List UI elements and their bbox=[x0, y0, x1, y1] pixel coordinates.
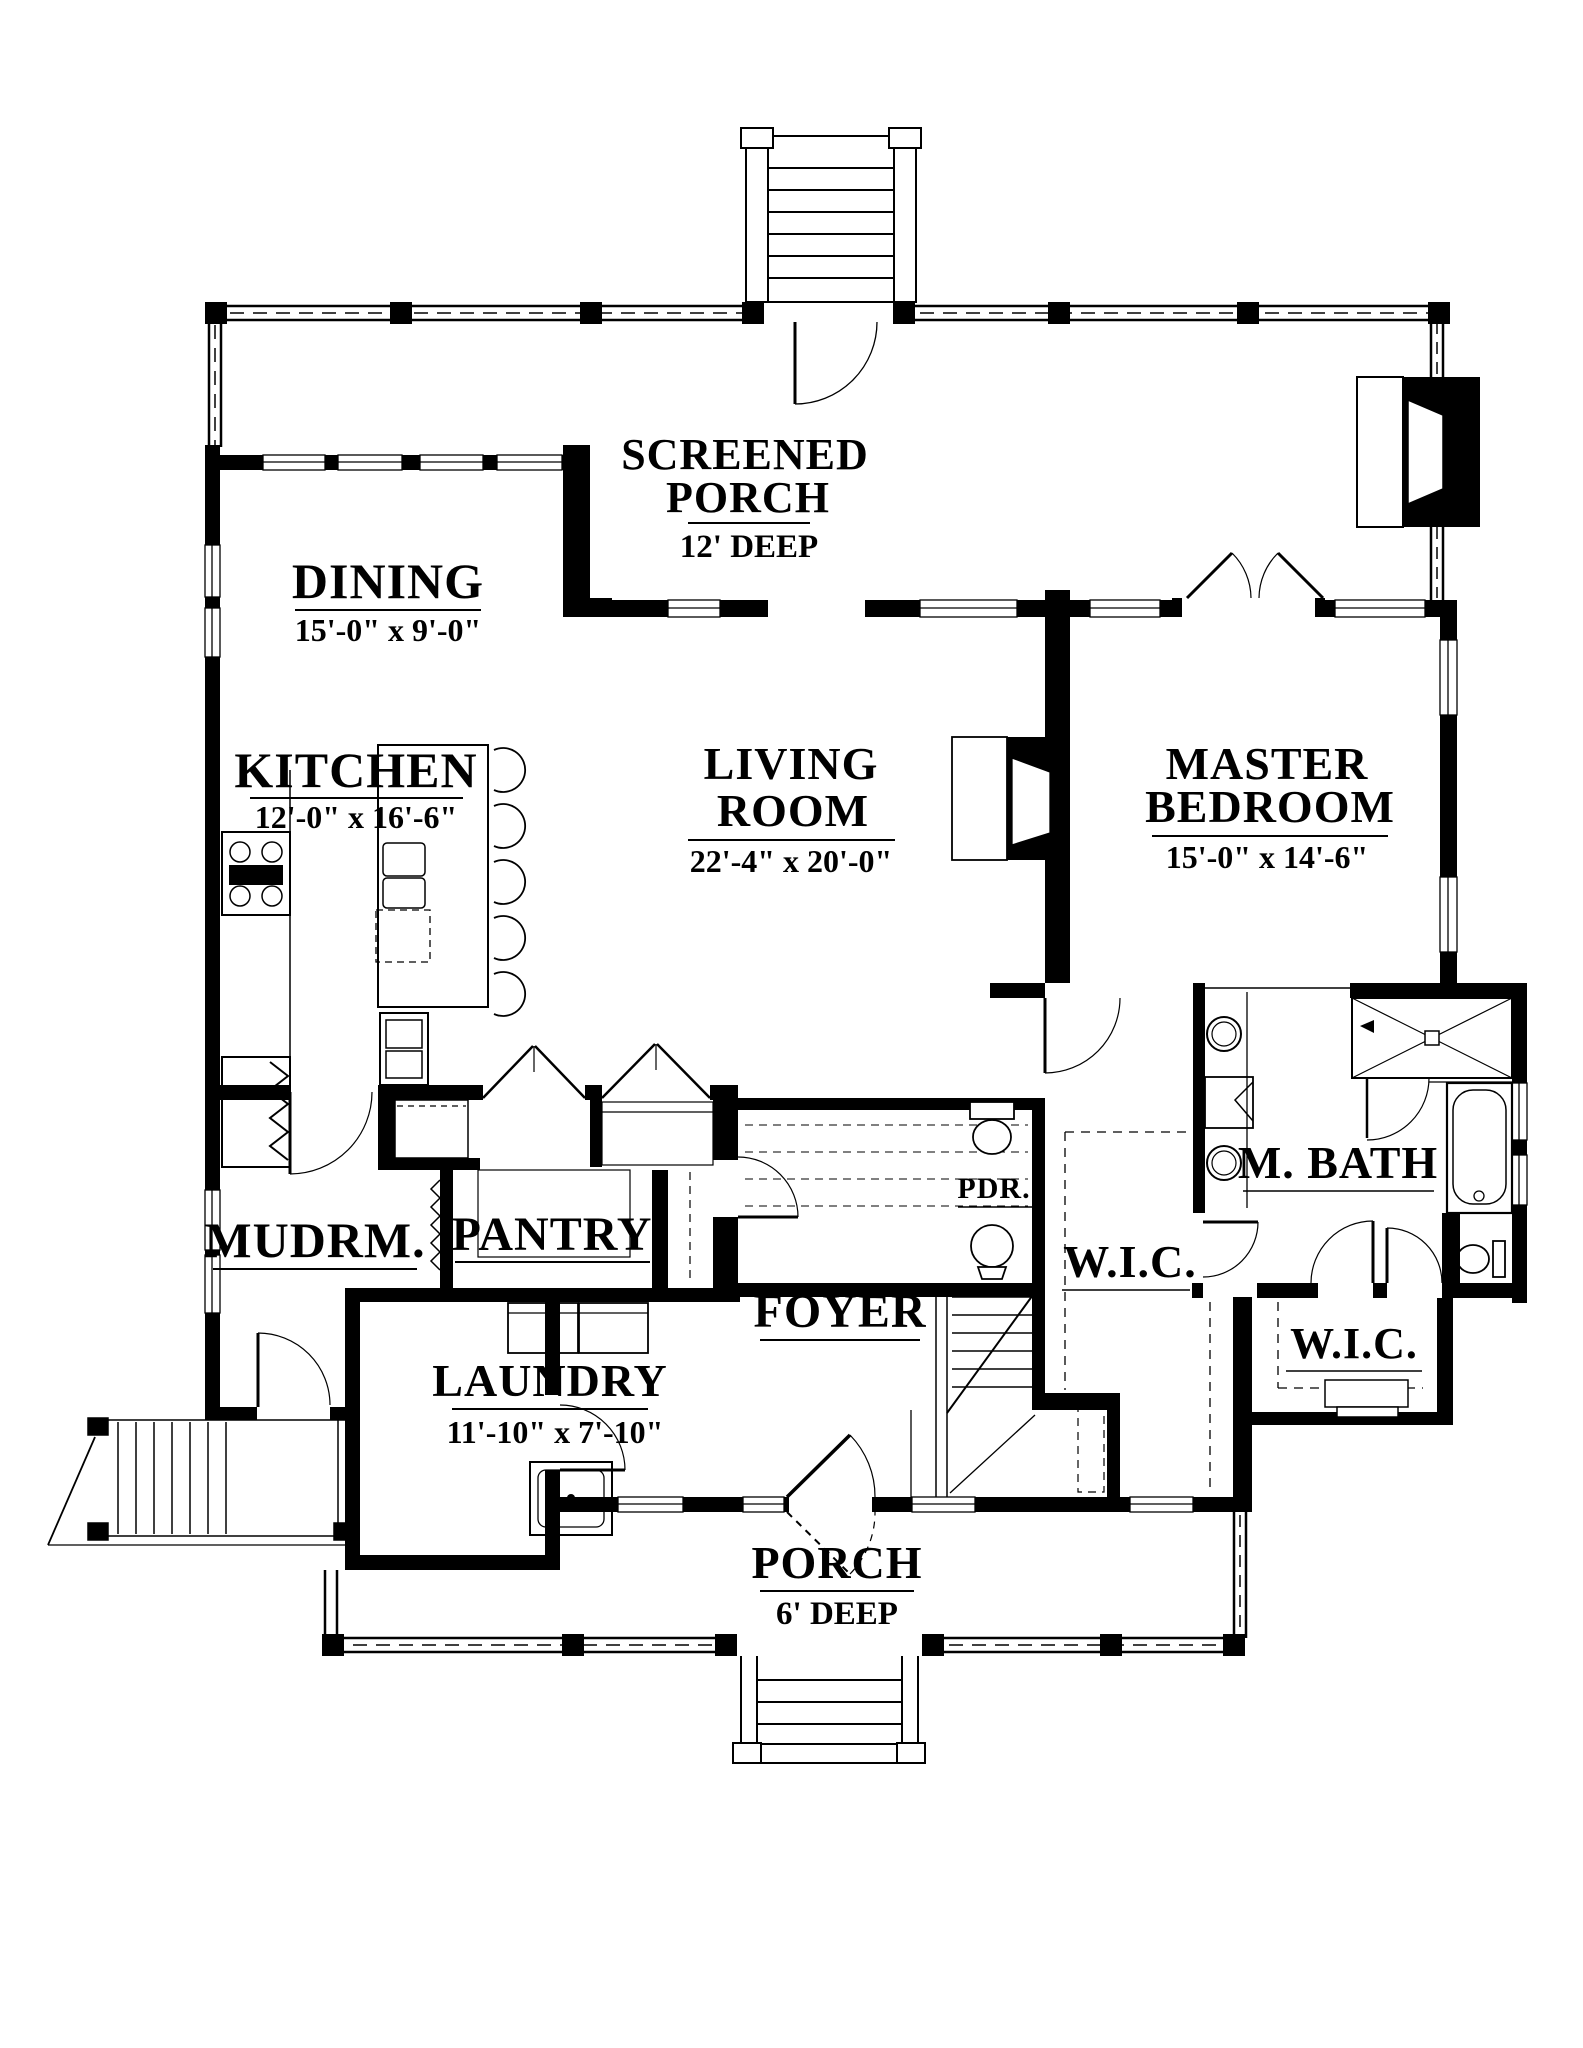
label-living: LIVING bbox=[704, 738, 879, 789]
fireplace-icon bbox=[952, 737, 1070, 860]
label-master-dim: 15'-0" x 14'-6" bbox=[1166, 839, 1369, 875]
label-screened-porch-2: PORCH bbox=[666, 473, 830, 522]
label-screened-porch: SCREENED bbox=[621, 430, 869, 479]
bar-stools bbox=[494, 748, 525, 1016]
interior-stairs bbox=[911, 1285, 1104, 1497]
label-porch-dim: 6' DEEP bbox=[776, 1596, 898, 1632]
master-bath-fixtures bbox=[1205, 988, 1512, 1277]
outdoor-fireplace-icon bbox=[1357, 377, 1480, 527]
label-pantry: PANTRY bbox=[452, 1208, 653, 1261]
label-pdr: PDR. bbox=[957, 1172, 1030, 1205]
floor-plan-drawing: SCREENED PORCH 12' DEEP DINING 15'-0" x … bbox=[0, 0, 1583, 2048]
label-living-dim: 22'-4" x 20'-0" bbox=[690, 843, 893, 879]
screen-door bbox=[795, 322, 877, 404]
washer-icon bbox=[508, 1303, 578, 1353]
wall-oven-icon bbox=[380, 1013, 428, 1085]
label-screened-porch-dim: 12' DEEP bbox=[680, 529, 818, 565]
toilet-icon bbox=[970, 1102, 1014, 1154]
label-porch: PORCH bbox=[751, 1537, 922, 1588]
label-mbath: M. BATH bbox=[1238, 1137, 1438, 1188]
bathtub-icon bbox=[1447, 1083, 1512, 1213]
label-living-2: ROOM bbox=[717, 785, 869, 836]
linen-cabinet bbox=[1205, 1077, 1253, 1128]
label-laundry-dim: 11'-10" x 7'-10" bbox=[447, 1414, 664, 1450]
pedestal-sink-icon bbox=[971, 1225, 1013, 1279]
wic-shelf bbox=[1325, 1380, 1408, 1417]
label-mudroom: MUDRM. bbox=[204, 1212, 425, 1268]
screened-porch-steps bbox=[741, 128, 921, 302]
label-kitchen: KITCHEN bbox=[234, 742, 477, 798]
range-icon bbox=[222, 832, 290, 915]
label-wic-rear: W.I.C. bbox=[1290, 1319, 1418, 1368]
label-wic-hall: W.I.C. bbox=[1063, 1236, 1196, 1287]
master-toilet-icon bbox=[1457, 1241, 1505, 1277]
label-dining: DINING bbox=[292, 553, 484, 609]
refrigerator-icon bbox=[222, 1057, 290, 1167]
label-dining-dim: 15'-0" x 9'-0" bbox=[295, 612, 482, 648]
side-stairs bbox=[48, 1418, 354, 1545]
label-foyer: FOYER bbox=[754, 1285, 927, 1338]
label-master-2: BEDROOM bbox=[1145, 781, 1395, 832]
shower-icon bbox=[1352, 998, 1512, 1082]
label-kitchen-dim: 12'-0" x 16'-6" bbox=[255, 799, 458, 835]
floor-plan: SCREENED PORCH 12' DEEP DINING 15'-0" x … bbox=[0, 0, 1583, 2048]
dryer-icon bbox=[579, 1303, 648, 1353]
label-laundry: LAUNDRY bbox=[432, 1355, 667, 1406]
front-steps bbox=[733, 1656, 925, 1763]
french-doors bbox=[1187, 553, 1323, 598]
